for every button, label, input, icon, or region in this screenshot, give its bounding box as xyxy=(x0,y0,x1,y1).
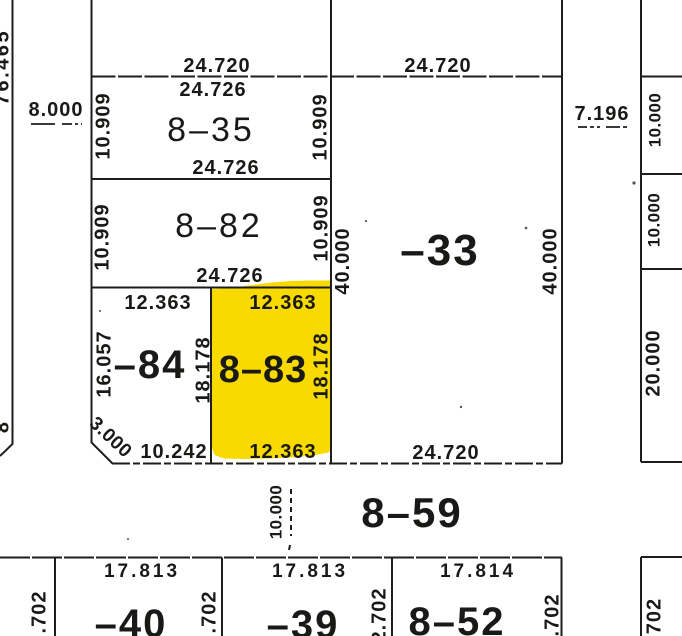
svg-text:12.363: 12.363 xyxy=(249,292,316,314)
svg-text:–40: –40 xyxy=(95,602,168,636)
svg-text:24.720: 24.720 xyxy=(412,442,479,464)
svg-text:.702: .702 xyxy=(198,591,220,634)
svg-text:8–82: 8–82 xyxy=(175,207,263,245)
svg-text:24.726: 24.726 xyxy=(196,265,263,287)
svg-text:40.000: 40.000 xyxy=(539,227,561,294)
svg-text:2.702: 2.702 xyxy=(368,587,390,636)
svg-text:–33: –33 xyxy=(400,226,479,275)
svg-text:18.178: 18.178 xyxy=(192,336,214,403)
svg-text:16.057: 16.057 xyxy=(93,330,115,397)
svg-text:24.720: 24.720 xyxy=(183,55,250,77)
svg-text:–39: –39 xyxy=(267,603,340,636)
svg-text:24.720: 24.720 xyxy=(404,55,471,77)
svg-text:8–59: 8–59 xyxy=(361,489,462,536)
svg-text:24.726: 24.726 xyxy=(192,157,259,179)
svg-text:–84: –84 xyxy=(114,343,187,387)
svg-text:10.909: 10.909 xyxy=(309,93,331,160)
svg-text:18.178: 18.178 xyxy=(310,332,332,399)
svg-text:10.909: 10.909 xyxy=(310,194,332,261)
svg-text:17.813: 17.813 xyxy=(104,561,180,582)
svg-text:10.909: 10.909 xyxy=(91,203,113,270)
svg-text:7.196: 7.196 xyxy=(574,103,629,125)
svg-text:12.363: 12.363 xyxy=(249,441,316,463)
svg-text:8–52: 8–52 xyxy=(409,600,506,636)
svg-text:17.814: 17.814 xyxy=(440,561,516,582)
svg-text:10.000: 10.000 xyxy=(266,485,285,539)
svg-text:8: 8 xyxy=(0,421,13,433)
svg-text:702: 702 xyxy=(643,598,665,634)
svg-text:8–83: 8–83 xyxy=(219,349,308,391)
svg-text:10.000: 10.000 xyxy=(644,193,663,247)
svg-text:8.000: 8.000 xyxy=(28,99,83,121)
svg-text:76.465: 76.465 xyxy=(0,29,13,105)
svg-text:8–35: 8–35 xyxy=(167,111,255,149)
svg-text:40.000: 40.000 xyxy=(332,227,354,294)
svg-text:17.813: 17.813 xyxy=(272,561,348,582)
svg-text:10.909: 10.909 xyxy=(92,92,114,159)
svg-text:10.000: 10.000 xyxy=(645,93,664,147)
svg-text:.702: .702 xyxy=(28,591,50,634)
svg-text:.702: .702 xyxy=(541,594,563,636)
svg-text:20.000: 20.000 xyxy=(642,329,664,396)
svg-text:10.242: 10.242 xyxy=(140,441,207,463)
svg-text:12.363: 12.363 xyxy=(124,292,191,314)
svg-text:24.726: 24.726 xyxy=(179,79,246,101)
